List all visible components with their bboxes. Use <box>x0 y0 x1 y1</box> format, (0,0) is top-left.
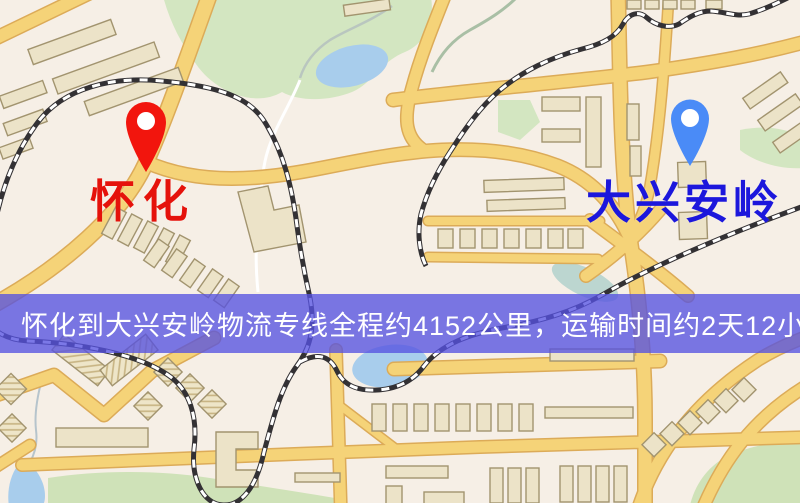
origin-label: 怀化 <box>90 179 196 224</box>
info-banner: 怀化到大兴安岭物流专线全程约4152公里，运输时间约2天12小时. <box>0 294 800 353</box>
banner-text: 怀化到大兴安岭物流专线全程约4152公里，运输时间约2天12小时. <box>21 304 800 343</box>
origin-pin-icon <box>118 100 174 174</box>
map-canvas <box>0 0 800 503</box>
map-screenshot: 怀化 大兴安岭 怀化到大兴安岭物流专线全程约4152公里，运输时间约2天12小时… <box>0 0 800 503</box>
destination-pin-icon <box>664 98 716 168</box>
destination-label: 大兴安岭 <box>586 180 782 225</box>
